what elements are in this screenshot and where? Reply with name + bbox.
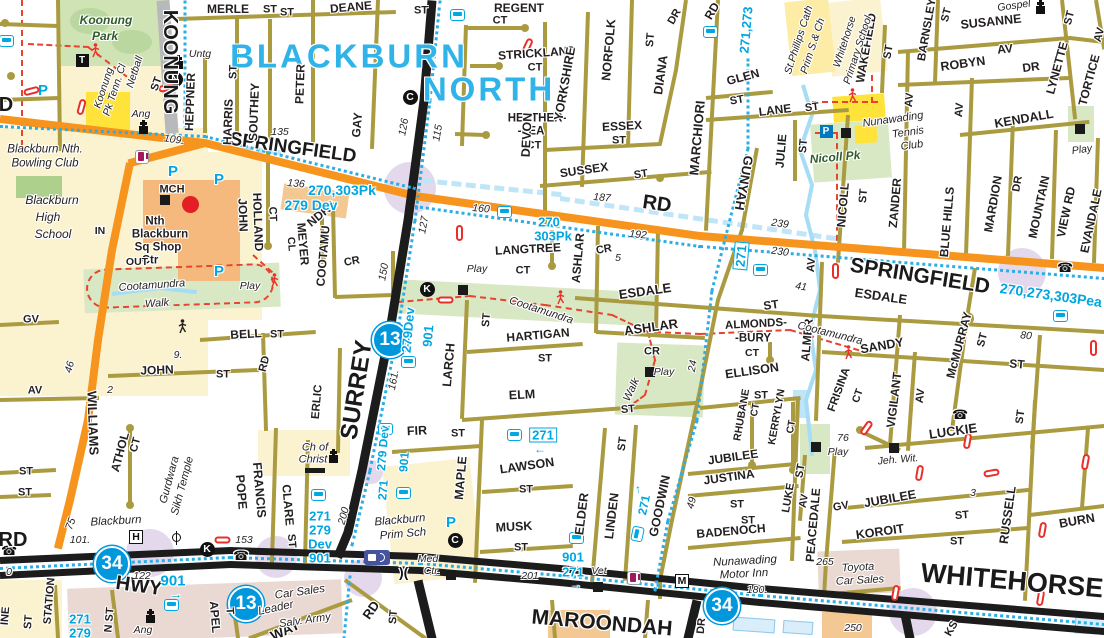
street-label: MUSK — [495, 520, 532, 534]
street-label: DR — [1022, 60, 1041, 74]
street-label: ST — [216, 370, 230, 381]
street-label: ST — [280, 8, 294, 19]
street-directory-map[interactable]: PPPPPPCCKKNHMT☎☎☎☎)(13133434BLACKBURNNOR… — [0, 0, 1104, 638]
street-label: OUT — [126, 257, 148, 268]
street-label: INE — [0, 606, 12, 625]
parking-box-icon: P — [820, 125, 833, 138]
street-label: AV — [28, 386, 42, 397]
hiker-icon — [269, 273, 280, 288]
poi-label: Ang — [132, 109, 151, 120]
street-label: DIANA — [652, 55, 670, 96]
building — [889, 443, 899, 453]
street-label: GV — [832, 500, 850, 514]
street-label: GAY — [350, 112, 364, 138]
street-label: ST — [18, 488, 32, 499]
street-label: N ST — [103, 607, 116, 633]
poi-label: Ang — [134, 625, 153, 636]
house-number: 127 — [417, 215, 430, 234]
house-number: 230 — [771, 246, 790, 259]
building — [811, 442, 821, 452]
street-label: ST — [882, 44, 895, 60]
bus-icon — [703, 26, 718, 38]
court-end — [126, 424, 134, 432]
house-number: 135 — [271, 127, 289, 138]
street-label: CT — [750, 403, 762, 418]
street-label: DEVON — [520, 112, 535, 157]
bus-stop-icon — [1080, 454, 1090, 471]
street-label: ST — [741, 516, 755, 527]
bus-stop-icon — [456, 225, 463, 241]
bus-route-label: 279 Dev — [375, 425, 391, 471]
fuel-icon — [627, 571, 641, 585]
street-label: VIEW RD — [1055, 186, 1077, 239]
street-label: KERRYLYN — [767, 388, 787, 445]
h-box-icon: H — [129, 530, 143, 544]
bus-icon — [396, 487, 411, 499]
street-label: CR — [644, 347, 660, 358]
street-label: CL — [285, 237, 297, 252]
house-number: 101. — [70, 535, 90, 546]
street-label: ESDALE — [618, 281, 672, 301]
house-number: 136 — [287, 178, 305, 190]
poi-label: Blackburn — [90, 515, 142, 529]
poi-label: Koonung — [80, 14, 133, 26]
bus-route-label: 901 — [562, 551, 584, 564]
poi-label: Toyota — [841, 562, 874, 575]
minor-road — [865, 424, 1104, 450]
street-label: DR — [696, 618, 708, 635]
street-label: RD — [641, 192, 672, 216]
bus-route-label: 270 — [538, 216, 560, 229]
mch-icon — [182, 196, 199, 213]
parking-icon: P — [214, 263, 226, 277]
poi-label: Play — [467, 264, 487, 275]
bus-stop-icon — [914, 465, 924, 482]
bus-route-label: 271 — [309, 510, 331, 523]
minor-road — [580, 12, 590, 187]
street-label: ST — [451, 429, 465, 440]
hiker-icon — [90, 43, 101, 58]
street-label: HOLLAND — [251, 192, 265, 251]
street-label: ST — [794, 463, 807, 479]
poi-label: Bowling Club — [11, 158, 78, 170]
street-label: KS — [943, 620, 960, 638]
street-label: ST — [950, 537, 964, 548]
church-icon — [329, 449, 338, 463]
bus-route-label: Dev — [308, 538, 332, 551]
bus-route-label: ↑ — [634, 483, 642, 496]
street-label: T — [223, 607, 235, 615]
bus-route-label: → — [570, 579, 582, 591]
court-end — [495, 62, 503, 70]
street-label: ST — [388, 610, 400, 625]
hiker-icon — [843, 345, 854, 360]
street-label: REGENT — [494, 2, 544, 14]
bus-icon — [1053, 310, 1068, 322]
house-number: 201 — [521, 571, 539, 582]
street-label: PETER — [293, 64, 306, 104]
house-number: 115 — [431, 124, 444, 142]
street-label: ST — [804, 102, 819, 115]
bus-route-label: 279 Dev — [285, 198, 338, 212]
poi-label: School — [35, 228, 72, 240]
bus-route-label: 271 — [376, 479, 390, 500]
house-number: 80 — [1020, 330, 1033, 341]
street-label: ST — [612, 136, 626, 147]
street-label: ELLISON — [724, 361, 779, 381]
house-number: 3 — [970, 488, 976, 499]
car-lot-2 — [783, 620, 814, 635]
court-end — [7, 72, 15, 80]
parking-icon: P — [214, 171, 226, 185]
street-label: LAWSON — [499, 456, 555, 476]
minor-road — [898, 76, 1069, 87]
house-number: 180. — [747, 585, 767, 596]
k-circle-icon: K — [200, 542, 215, 557]
hiker-icon — [847, 88, 858, 103]
street-label: FRISINA — [827, 366, 854, 413]
court-end — [126, 501, 134, 509]
bus-stop-icon — [983, 468, 1000, 478]
street-label: ST — [414, 6, 428, 17]
street-label: ELM — [508, 388, 535, 402]
street-label: LINDEN — [603, 492, 621, 540]
street-label: SUSANNE — [960, 13, 1022, 32]
fuel-icon — [135, 150, 149, 164]
bus-route-label: 901 — [421, 325, 436, 348]
minor-road — [331, 207, 337, 298]
bus-icon — [507, 429, 522, 441]
poi-label: Vet — [591, 566, 606, 577]
street-label: ST — [858, 189, 870, 204]
street-label: CT — [129, 436, 143, 453]
minor-road — [590, 428, 607, 584]
street-label: MERLE — [207, 3, 249, 15]
poi-label: Christ — [299, 455, 328, 466]
street-label: ST — [645, 33, 657, 48]
poi-label: Motor Inn — [719, 568, 768, 582]
street-label: ZANDER — [887, 178, 903, 229]
bus-route-label: 279 — [69, 627, 91, 638]
house-number: 239 — [771, 218, 790, 231]
house-number: 24 — [687, 359, 699, 372]
bus-stop-icon — [832, 263, 839, 279]
street-label: ST — [481, 313, 493, 328]
minor-road — [545, 142, 661, 152]
poi-label: Ch of — [302, 443, 328, 454]
street-label: JUBILEE — [863, 488, 917, 509]
church-icon — [139, 120, 148, 134]
street-label: CT — [266, 206, 278, 221]
street-label: Blackburn — [132, 229, 188, 241]
poi-label: Med — [418, 554, 438, 565]
church-icon — [146, 609, 155, 623]
suburb-label: NORTH — [423, 73, 555, 106]
street-label: ST — [270, 330, 284, 341]
street-label: ST — [538, 354, 552, 365]
street-label: Sq Shop — [135, 242, 182, 254]
house-number: 161. — [387, 369, 401, 391]
street-label: HEPPNER — [183, 73, 197, 131]
street-label: ESSEX — [602, 119, 643, 133]
suburb-label: BLACKBURN — [230, 40, 468, 73]
church-icon — [1036, 0, 1045, 14]
poi-label: Walk — [145, 298, 170, 311]
minor-road — [467, 342, 583, 354]
c-circle-icon: C — [448, 533, 463, 548]
bus-route-label: 270,273,303Pea — [999, 281, 1103, 309]
street-label: ST — [621, 404, 636, 416]
street-label: ST — [617, 436, 630, 451]
minor-road — [465, 26, 524, 30]
house-number: 41 — [794, 281, 807, 293]
bus-stop-icon — [214, 537, 230, 544]
bus-route-label: 279Dev — [400, 307, 417, 354]
bus-route-label: 901 — [397, 451, 411, 472]
street-label: RD — [0, 530, 27, 550]
street-label: NICOLL — [835, 182, 851, 228]
house-number: 250 — [844, 623, 862, 634]
poi-label: High — [36, 211, 61, 223]
street-label: CR — [595, 243, 613, 257]
street-label: AV — [806, 257, 818, 272]
street-label: BURN — [1058, 512, 1096, 531]
street-label: ST — [23, 615, 35, 630]
house-number: 49 — [685, 496, 698, 510]
minor-road — [335, 293, 394, 299]
street-label: ESDALE — [854, 286, 908, 306]
street-label: DR — [1011, 175, 1025, 193]
street-label: CT — [493, 16, 508, 27]
street-label: ROBYN — [940, 55, 986, 74]
court-end — [656, 174, 664, 182]
court-end — [521, 24, 529, 32]
phone-icon: ☎ — [1057, 261, 1071, 275]
street-label: ST — [633, 169, 648, 182]
phone-icon: ☎ — [952, 408, 966, 422]
street-label: CT — [851, 388, 866, 405]
walking-path — [871, 75, 873, 103]
court-end — [482, 131, 490, 139]
street-label: LARCH — [441, 343, 457, 388]
street-label: ASHLAR — [570, 233, 586, 284]
street-label: BADENOCH — [696, 522, 766, 540]
m-box-icon: M — [675, 574, 689, 588]
bus-route-label: 303Pk — [534, 230, 572, 243]
street-label: WILLIAMS — [85, 391, 100, 456]
poi-label: Blackburn — [25, 194, 78, 206]
street-label: LANE — [758, 102, 792, 118]
street-label: AV — [997, 42, 1014, 56]
minor-road — [460, 300, 469, 419]
house-number: 46 — [63, 360, 76, 374]
c-circle-icon: C — [403, 90, 418, 105]
street-label: CT — [745, 348, 759, 359]
street-label: JULIE — [774, 134, 789, 169]
building — [446, 570, 456, 580]
court-end — [1, 19, 9, 27]
street-label: AV — [1093, 27, 1104, 44]
route-shield: 34 — [704, 588, 740, 624]
street-label: JOHN — [236, 198, 249, 232]
creek — [804, 185, 814, 217]
street-label: ST — [514, 543, 528, 554]
minor-road — [370, 0, 380, 149]
street-label: EVANDALE — [1078, 188, 1103, 254]
bus-stop-icon — [1090, 340, 1097, 356]
street-label: MARCHIORI — [687, 100, 706, 176]
house-number: 187 — [593, 192, 611, 204]
toilet-icon: T — [76, 54, 89, 67]
bus-icon — [630, 525, 645, 542]
street-label: COOTAMU — [314, 225, 331, 287]
house-number: 76 — [837, 433, 849, 444]
street-label: FIR — [407, 424, 428, 438]
building — [841, 128, 851, 138]
street-label: ST — [754, 391, 768, 402]
street-label: NORFOLK — [600, 19, 618, 82]
street-label: ERLIC — [311, 384, 325, 419]
street-label: GLEN — [725, 67, 760, 87]
street-label: WHITEHORSE — [920, 560, 1104, 603]
bus-route-label: 271 — [529, 428, 557, 443]
street-label: BLUE HILLS — [938, 186, 956, 257]
bus-route-label: 271 — [69, 613, 91, 626]
bus-route-label: 271 — [636, 494, 652, 516]
poi-label: Play — [654, 367, 674, 378]
parking-icon: P — [168, 163, 180, 177]
street-label: AV — [915, 388, 928, 404]
k-circle-icon: K — [420, 282, 435, 297]
bus-route-label: 271 — [562, 566, 584, 579]
street-label: AV — [904, 92, 916, 107]
street-label: ST — [940, 7, 954, 23]
street-label: CLARE — [280, 484, 296, 526]
street-label: MARDION — [982, 175, 1004, 234]
street-label: ST — [19, 467, 33, 478]
street-label: DEANE — [330, 0, 373, 15]
street-label: Nth — [145, 216, 164, 228]
bus-icon — [450, 9, 465, 21]
bus-route-label: → — [170, 588, 183, 601]
street-label: IN — [95, 226, 106, 237]
house-number: 109. — [163, 133, 185, 146]
street-label: ST — [519, 485, 533, 496]
street-label: MOUNTAIN — [1027, 175, 1052, 240]
street-label: AV — [798, 493, 811, 508]
street-label: TORTICE — [1076, 53, 1101, 107]
house-number: 2 — [107, 385, 113, 396]
minor-road — [203, 55, 207, 133]
street-label: AV — [954, 102, 966, 117]
street-label: ST — [976, 332, 990, 348]
street-label: HARRIS — [221, 99, 235, 145]
street-label: -BURY — [735, 333, 771, 345]
street-label: ST — [285, 534, 297, 549]
bus-icon — [311, 489, 326, 501]
street-label: ST — [955, 510, 970, 522]
street-label: ELDER — [573, 492, 591, 536]
poi-label: Gospel — [997, 0, 1031, 14]
house-number: 122 — [133, 571, 151, 582]
house-number: 160 — [472, 203, 490, 215]
court-end — [548, 262, 556, 270]
building — [458, 285, 468, 295]
street-label: D — [0, 95, 13, 115]
street-label: ST — [1009, 357, 1025, 370]
street-label: MEYER — [295, 222, 311, 266]
sikh-temple-icon — [170, 531, 183, 545]
bus-icon — [401, 356, 416, 368]
bridge-icon: )( — [399, 564, 413, 578]
poi-label: Park — [92, 30, 118, 42]
house-number: 265 — [816, 557, 834, 568]
bus-icon — [0, 35, 14, 47]
street-label: APEL — [208, 601, 223, 634]
building — [1075, 124, 1085, 134]
walking-path — [812, 101, 878, 103]
poi-label: Jeh. Wit. — [877, 453, 919, 467]
bus-route-label: 271 — [732, 242, 749, 271]
street-label: ST — [1063, 10, 1077, 26]
street-label: GV — [23, 315, 39, 326]
house-number: 126 — [397, 117, 410, 136]
speed-camera-icon — [364, 550, 390, 565]
street-label: CT — [528, 63, 543, 74]
bus-stop-icon — [437, 297, 453, 304]
bus-route-label: 271,273 — [737, 6, 754, 54]
parking-icon: P — [446, 514, 458, 528]
house-number: 9. — [174, 350, 183, 361]
street-label: JOHN — [140, 363, 174, 376]
hiker-icon — [555, 290, 566, 305]
street-label: ST — [1015, 409, 1028, 424]
street-label: ST — [263, 5, 277, 16]
minor-road — [470, 64, 498, 68]
street-label: CT — [516, 266, 531, 277]
house-number: 192 — [629, 229, 647, 241]
street-label: RD — [258, 355, 273, 373]
street-label: HARTIGAN — [506, 326, 570, 343]
minor-road — [266, 150, 270, 245]
bus-route-label: 901 — [309, 552, 331, 565]
poi-label: Untg — [189, 49, 211, 60]
bus-route-label: 279 — [309, 524, 331, 537]
parking-icon: P — [38, 82, 50, 96]
street-label: BELL — [230, 327, 262, 341]
bus-route-label: ← — [534, 443, 546, 455]
bus-icon — [497, 206, 512, 218]
street-label: ST — [729, 94, 745, 107]
street-label: LYNETTE — [1044, 41, 1069, 96]
house-number: 0 — [6, 567, 12, 578]
poi-label: Play — [1071, 143, 1093, 156]
car-lot-1 — [733, 617, 776, 634]
street-label: CR — [343, 255, 361, 269]
street-label: ST — [730, 500, 744, 511]
poi-label: Ctr. — [424, 566, 441, 577]
street-label: POPE — [233, 474, 248, 510]
phone-icon: ☎ — [233, 549, 247, 563]
poi-label: Blackburn Nth. — [7, 144, 82, 156]
street-label: SOUTHEY — [247, 83, 261, 141]
bus-route-label: 270,303Pk — [308, 183, 376, 197]
house-number: 153 — [235, 535, 253, 546]
bus-stop-icon — [1037, 522, 1047, 539]
building — [305, 468, 325, 473]
street-label: ST — [228, 65, 239, 79]
street-label: LANGTREE — [495, 241, 562, 256]
